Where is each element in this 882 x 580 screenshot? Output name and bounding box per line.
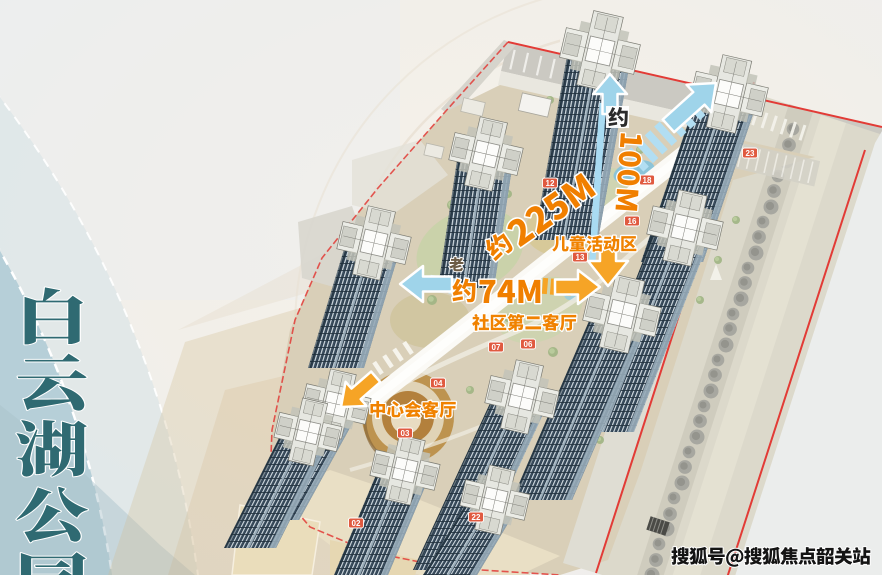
svg-text:16: 16 bbox=[628, 217, 637, 226]
svg-text:06: 06 bbox=[524, 340, 533, 349]
svg-text:04: 04 bbox=[434, 379, 443, 388]
svg-text:18: 18 bbox=[643, 176, 652, 185]
svg-text:22: 22 bbox=[472, 513, 481, 522]
svg-text:03: 03 bbox=[401, 429, 410, 438]
svg-text:12: 12 bbox=[546, 179, 555, 188]
svg-text:23: 23 bbox=[746, 149, 755, 158]
svg-text:07: 07 bbox=[492, 343, 501, 352]
svg-text:13: 13 bbox=[576, 253, 585, 262]
svg-text:02: 02 bbox=[352, 519, 361, 528]
